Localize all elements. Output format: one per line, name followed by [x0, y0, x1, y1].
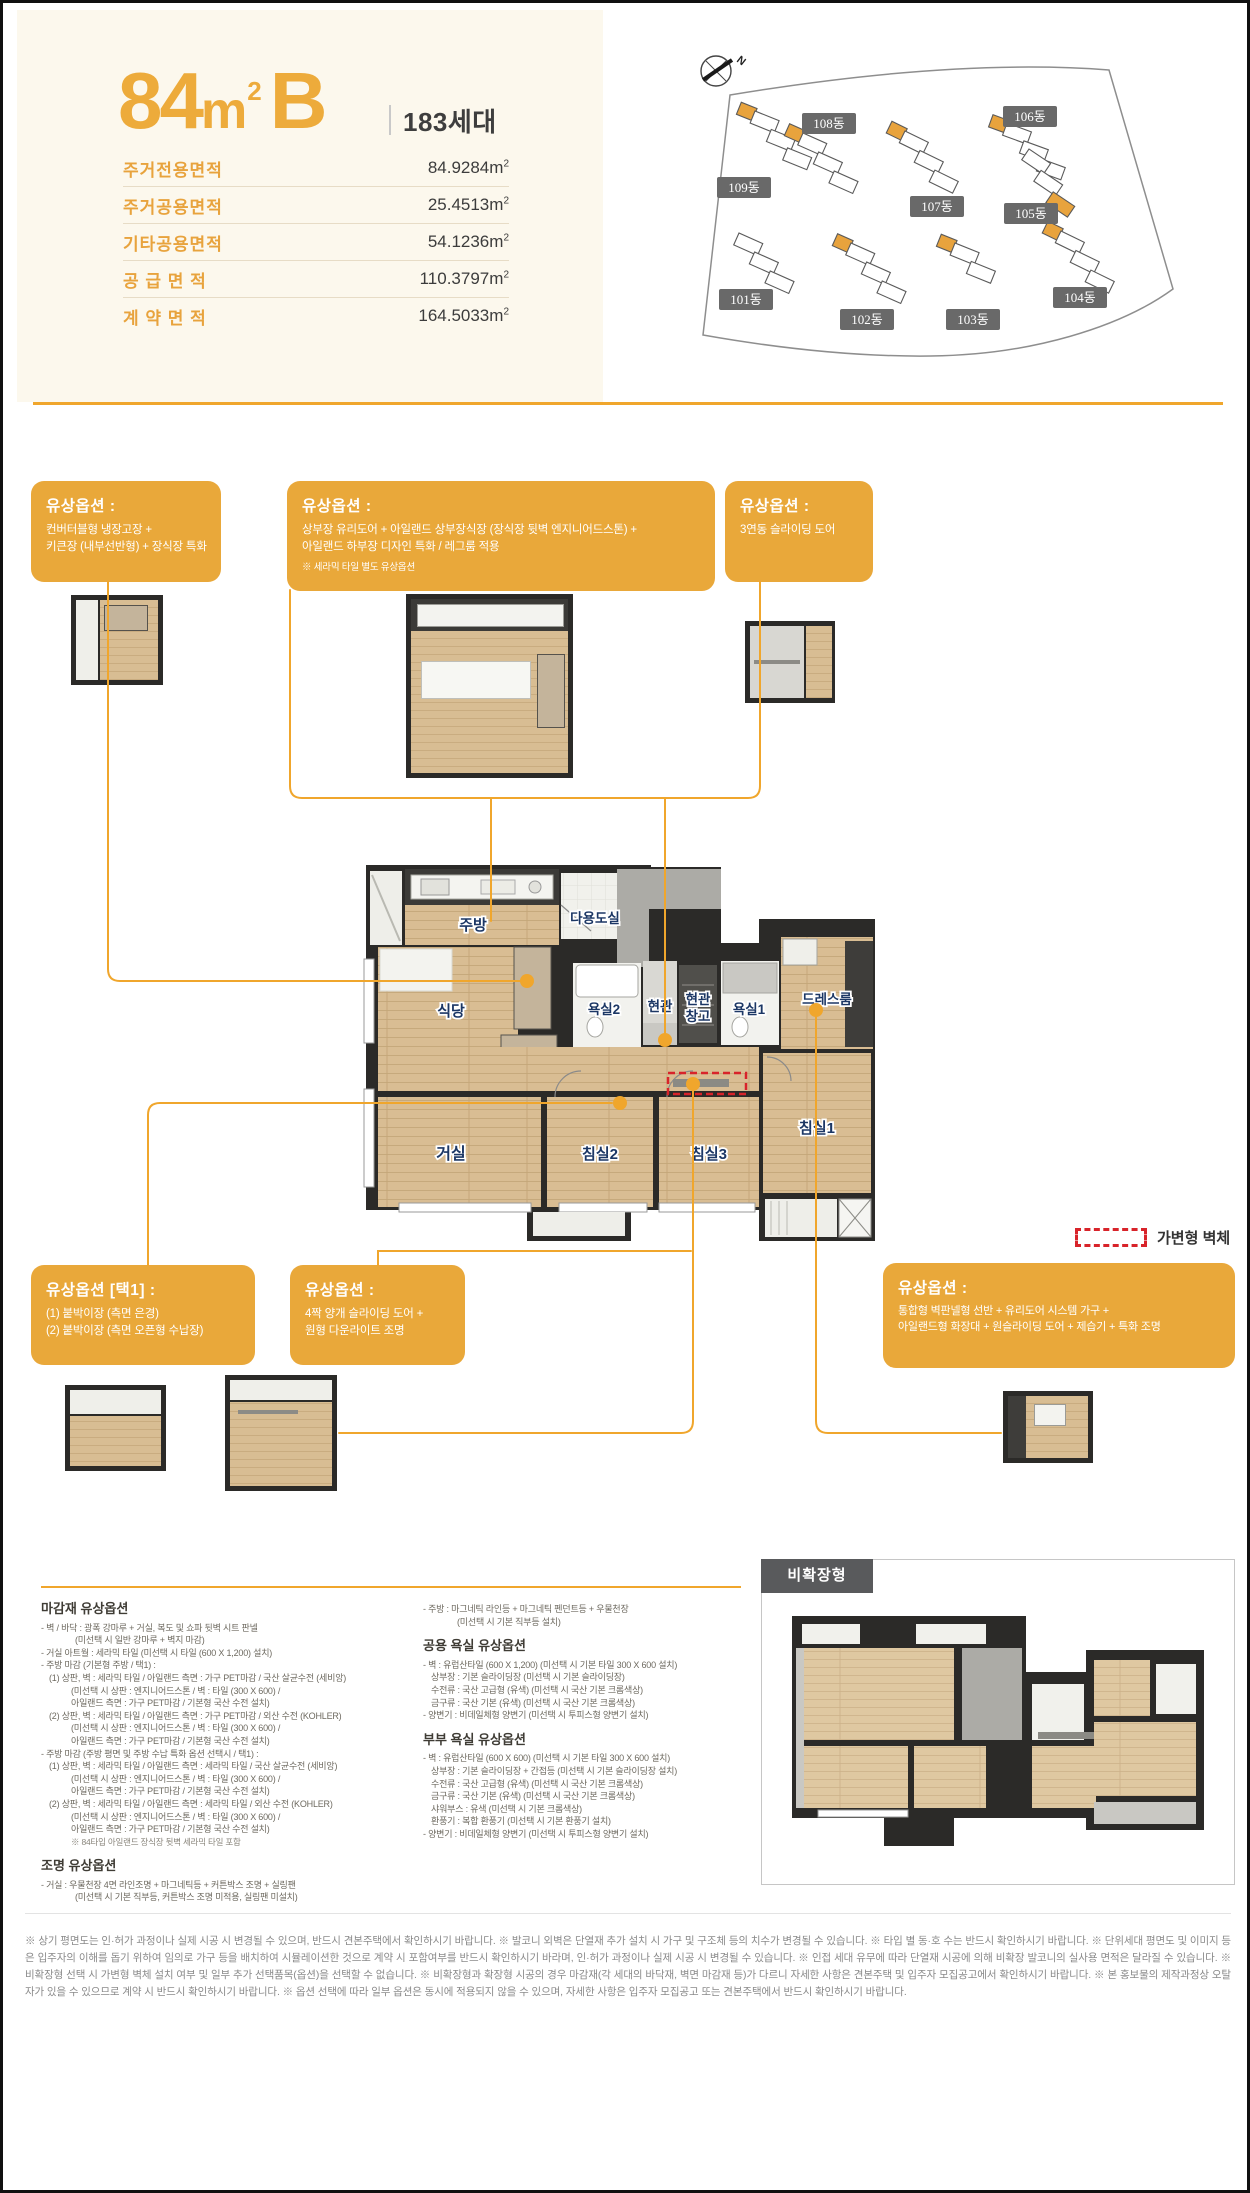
building-badge-101: 101동	[719, 289, 773, 310]
spec-line: - 주방 : 마그네틱 라인등 + 마그네틱 펜던트등 + 우물천장	[423, 1603, 753, 1616]
spec-line: 금구류 : 국산 기본 (유색) (미선택 시 국산 기본 크롬색상)	[423, 1790, 753, 1803]
floor-plan-page: 84m2B 183세대 주거전용면적84.9284m2 주거공용면적25.451…	[0, 0, 1250, 2193]
spec-line: (미선택 시 상판 : 엔지니어드스톤 / 벽 : 타일 (300 X 600)…	[41, 1722, 433, 1735]
room-label-bed3: 침실3	[691, 1146, 727, 1163]
building-badge-109: 109동	[717, 177, 771, 198]
spec-line: (1) 상판, 벽 : 세라믹 타일 / 아일랜드 측면 : 세라믹 타일 / …	[41, 1760, 433, 1773]
option-detail-fridge-image	[71, 595, 163, 685]
table-row: 계 약 면 적164.5033m2	[123, 298, 509, 334]
spec-line: - 양변기 : 비데일체형 양변기 (미선택 시 투피스형 양변기 설치)	[423, 1828, 753, 1841]
spec-line: (미선택 시 상판 : 엔지니어드스톤 / 벽 : 타일 (300 X 600)…	[41, 1811, 433, 1824]
spec-line: - 주방 마감 (주방 평면 및 주방 수납 특화 옵션 선택시 / 택1) :	[41, 1748, 433, 1761]
svg-text:108동: 108동	[813, 116, 845, 131]
svg-text:107동: 107동	[921, 199, 953, 214]
section-title: 마감재 유상옵션	[41, 1603, 433, 1616]
movable-wall-legend-label: 가변형 벽체	[1157, 1227, 1230, 1248]
paid-option-box-fridge: 유상옵션 : 컨버터블형 냉장고장 + 키큰장 (내부선반형) + 장식장 특화	[31, 481, 221, 582]
bath-options-column: - 주방 : 마그네틱 라인등 + 마그네틱 펜던트등 + 우물천장 (미선택 …	[423, 1603, 753, 1841]
spec-line: 샤워부스 : 유색 (미선택 시 기본 크롬색상)	[423, 1803, 753, 1816]
spec-line: (미선택 시 기본 직부등, 커튼박스 조명 미적용, 실링팬 미설치)	[41, 1891, 433, 1904]
option-detail-kitchen-image	[406, 594, 573, 778]
section-title: 부부 욕실 유상옵션	[423, 1734, 753, 1747]
spec-line: (미선택 시 기본 직부등 설치)	[423, 1616, 753, 1629]
paid-option-box-closet: 유상옵션 [택1] : (1) 붙박이장 (측면 은경) (2) 붙박이장 (측…	[31, 1265, 255, 1365]
table-row: 공 급 면 적110.3797m2	[123, 261, 509, 298]
building-badge-107: 107동	[910, 196, 964, 217]
room-label-bed2: 침실2	[582, 1146, 618, 1163]
section-title: 조명 유상옵션	[41, 1860, 433, 1873]
spec-line: - 거실 아트월 : 세라믹 타일 (미선택 시 타일 (600 X 1,200…	[41, 1647, 433, 1660]
spec-line: ※ 84타입 아일랜드 장식장 뒷벽 세라믹 타일 포함	[41, 1836, 433, 1849]
non-expanded-floor-plan	[788, 1612, 1208, 1864]
spec-line: (미선택 시 일반 강마루 + 벽지 마감)	[41, 1634, 433, 1647]
spec-line: 수전류 : 국산 고급형 (유색) (미선택 시 국산 기본 크롬색상)	[423, 1684, 753, 1697]
room-label-dressroom: 드레스룸	[802, 992, 852, 1007]
spec-line: - 거실 : 우물천장 4면 라인조명 + 마그네틱등 + 커튼박스 조명 + …	[41, 1879, 433, 1892]
svg-text:109동: 109동	[728, 180, 760, 195]
spec-line: - 벽 / 바닥 : 광폭 강마루 + 거실, 복도 및 쇼파 뒷벽 시트 판넬	[41, 1622, 433, 1635]
paid-option-box-sliding-door: 유상옵션 : 4짝 양개 슬라이딩 도어 + 원형 다운라이트 조명	[290, 1265, 465, 1365]
svg-text:N: N	[734, 54, 748, 68]
spec-line: - 주방 마감 (기본형 주방 / 택1) :	[41, 1659, 433, 1672]
unit-type-number: 84	[118, 56, 201, 145]
spec-line: - 벽 : 유럽산타일 (600 X 1,200) (미선택 시 기본 타일 3…	[423, 1659, 753, 1672]
spec-line: 상부장 : 기본 슬라이딩장 + 간접등 (미선택 시 기본 슬라이딩장 설치)	[423, 1765, 753, 1778]
room-label-bath2: 욕실2	[588, 1002, 620, 1017]
paid-option-box-entry-door: 유상옵션 : 3연동 슬라이딩 도어	[725, 481, 873, 582]
building-badge-108: 108동	[802, 113, 856, 134]
table-row: 주거공용면적25.4513m2	[123, 187, 509, 224]
room-label-bed1: 침실1	[799, 1120, 835, 1137]
spec-line: 아일랜드 측면 : 가구 PET마감 / 기본형 국산 수전 설치)	[41, 1823, 433, 1836]
building-badge-106: 106동	[1003, 106, 1057, 127]
non-expanded-panel: 비확장형	[761, 1559, 1235, 1885]
svg-text:105동: 105동	[1015, 206, 1047, 221]
main-floor-plan: 주방 다용도실 식당 욕실2 현관 현관창고 욕실1 드레스룸 거실 침실2 침…	[361, 859, 881, 1249]
paid-option-box-kitchen: 유상옵션 : 상부장 유리도어 + 아일랜드 상부장식장 (장식장 뒷벽 엔지니…	[287, 481, 715, 591]
paid-option-box-dressroom: 유상옵션 : 통합형 벽판넬형 선반 + 유리도어 시스템 가구 + 아일랜드형…	[883, 1263, 1235, 1368]
room-label-kitchen: 주방	[459, 916, 487, 934]
option-detail-closet-image	[65, 1385, 166, 1471]
specs-divider-line	[41, 1586, 741, 1588]
svg-text:106동: 106동	[1014, 109, 1046, 124]
room-label-utility: 다용도실	[570, 911, 620, 926]
spec-line: - 벽 : 유럽산타일 (600 X 600) (미선택 시 기본 타일 300…	[423, 1752, 753, 1765]
spec-line: 상부장 : 기본 슬라이딩장 (미선택 시 기본 슬라이딩장)	[423, 1671, 753, 1684]
svg-text:103동: 103동	[957, 312, 989, 327]
room-label-entry: 현관	[648, 998, 673, 1014]
spec-line: 환풍기 : 복합 환풍기 (미선택 시 기본 환풍기 설치)	[423, 1815, 753, 1828]
spec-line: (2) 상판, 벽 : 세라믹 타일 / 아일랜드 측면 : 가구 PET마감 …	[41, 1710, 433, 1723]
unit-type-title: 84m2B	[118, 55, 324, 147]
spec-line: 아일랜드 측면 : 가구 PET마감 / 기본형 국산 수전 설치)	[41, 1697, 433, 1710]
spec-line: (1) 상판, 벽 : 세라믹 타일 / 아일랜드 측면 : 가구 PET마감 …	[41, 1672, 433, 1685]
spec-line: 금구류 : 국산 기본 (유색) (미선택 시 국산 기본 크롬색상)	[423, 1697, 753, 1710]
spec-line: (미선택 시 상판 : 엔지니어드스톤 / 벽 : 타일 (300 X 600)…	[41, 1773, 433, 1786]
spec-line: 아일랜드 측면 : 가구 PET마감 / 기본형 국산 수전 설치)	[41, 1735, 433, 1748]
spec-line: 아일랜드 측면 : 가구 PET마감 / 기본형 국산 수전 설치)	[41, 1785, 433, 1798]
spec-line: 수전류 : 국산 고급형 (유색) (미선택 시 국산 기본 크롬색상)	[423, 1778, 753, 1791]
movable-wall-legend: 가변형 벽체	[1075, 1227, 1230, 1248]
non-expanded-tab: 비확장형	[761, 1559, 873, 1593]
svg-text:102동: 102동	[851, 312, 883, 327]
table-row: 주거전용면적84.9284m2	[123, 150, 509, 187]
spec-line: (미선택 시 상판 : 엔지니어드스톤 / 벽 : 타일 (300 X 600)…	[41, 1685, 433, 1698]
option-detail-entry-image	[745, 621, 835, 703]
table-row: 기타공용면적54.1236m2	[123, 224, 509, 261]
building-badge-102: 102동	[840, 309, 894, 330]
svg-text:104동: 104동	[1064, 290, 1096, 305]
room-label-living: 거실	[436, 1145, 465, 1163]
room-label-bath1: 욕실1	[733, 1002, 766, 1017]
building-badge-105: 105동	[1004, 203, 1058, 224]
building-badge-104: 104동	[1053, 287, 1107, 308]
compass-icon: N	[701, 54, 748, 86]
option-detail-dressroom-image	[1003, 1391, 1093, 1463]
room-label-dining: 식당	[437, 1002, 465, 1020]
section-title: 공용 욕실 유상옵션	[423, 1640, 753, 1653]
building-badge-103: 103동	[946, 309, 1000, 330]
households-count: 183세대	[403, 102, 497, 139]
section-divider-line	[33, 402, 1223, 405]
option-detail-bedroom3-image	[225, 1375, 337, 1491]
spec-line: (2) 상판, 벽 : 세라믹 타일 / 아일랜드 측면 : 세라믹 타일 / …	[41, 1798, 433, 1811]
title-divider	[389, 105, 391, 135]
site-map: N 101동 102동 103동 104동 105동 106동 107동 108…	[643, 31, 1243, 376]
finish-options-column: 마감재 유상옵션 - 벽 / 바닥 : 광폭 강마루 + 거실, 복도 및 쇼파…	[41, 1603, 433, 1904]
footer-divider	[25, 1913, 1231, 1914]
spec-line: - 양변기 : 비데일체형 양변기 (미선택 시 투피스형 양변기 설치)	[423, 1709, 753, 1722]
area-table: 주거전용면적84.9284m2 주거공용면적25.4513m2 기타공용면적54…	[123, 150, 509, 334]
disclaimer-text: ※ 상기 평면도는 인·허가 과정이나 실제 시공 시 변경될 수 있으며, 반…	[25, 1933, 1231, 2001]
svg-text:101동: 101동	[730, 292, 762, 307]
movable-wall-legend-swatch	[1075, 1228, 1147, 1247]
